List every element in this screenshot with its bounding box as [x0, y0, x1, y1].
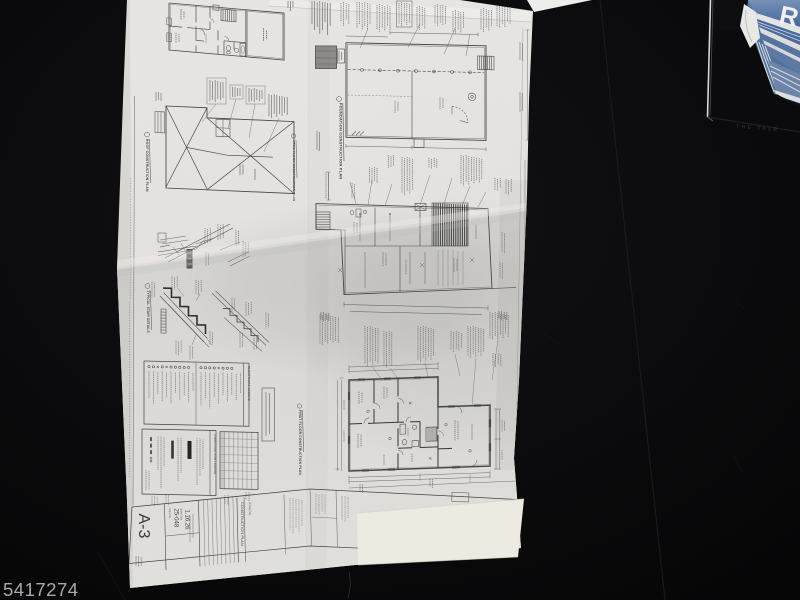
svg-text:5417274: 5417274	[3, 579, 79, 600]
